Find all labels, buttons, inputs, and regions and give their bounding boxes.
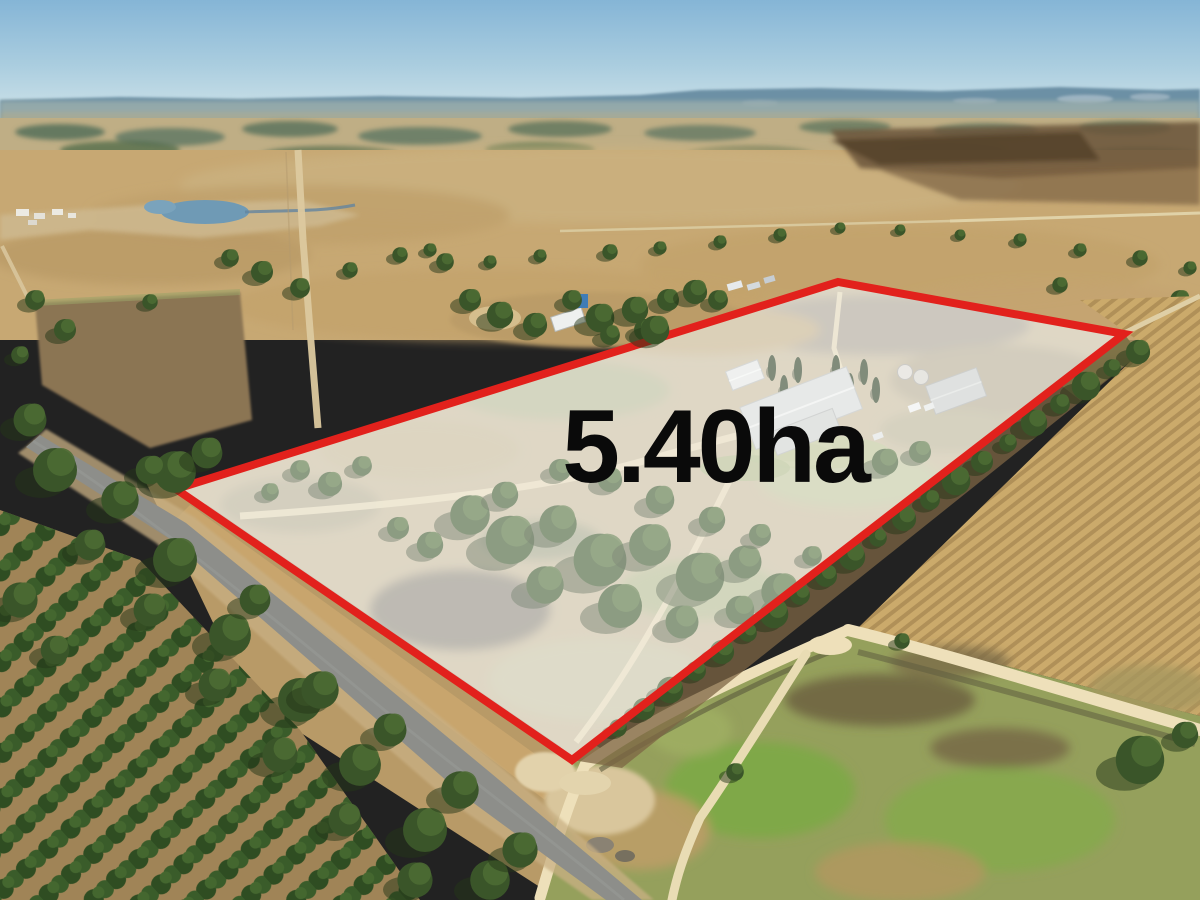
aerial-photo-canvas: 5.40ha bbox=[0, 0, 1200, 900]
brown-paddock bbox=[35, 292, 252, 448]
aerial-photo: 5.40ha bbox=[0, 0, 1200, 900]
area-label: 5.40ha bbox=[562, 389, 872, 505]
dam-water bbox=[161, 200, 249, 224]
gravel-pad bbox=[559, 771, 611, 795]
